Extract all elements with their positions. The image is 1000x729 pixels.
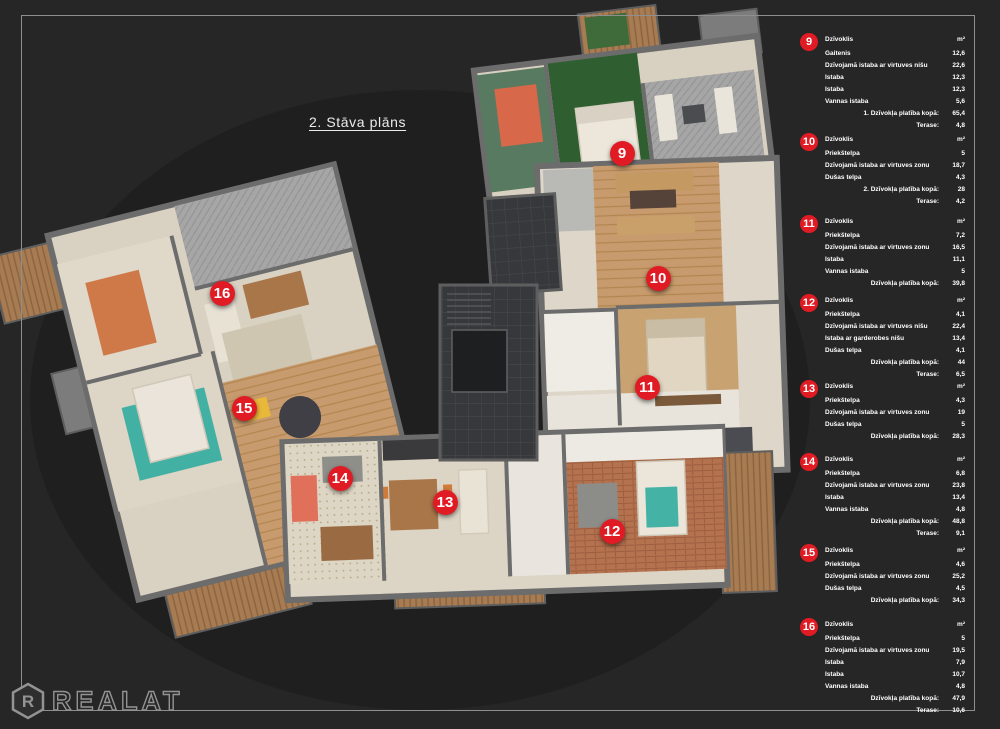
apartment-legend-12: 12 Dzīvoklis m² Priekštelpa 4,1 Dzīvojam… bbox=[800, 294, 965, 381]
room-table: Dzīvoklis m² Gaitenis 12,6 Dzīvojamā ist… bbox=[825, 34, 965, 132]
room-row: Terase: 4,2 bbox=[825, 196, 965, 208]
room-row: Vannas istaba 4,8 bbox=[825, 681, 965, 693]
apartment-legend-9: 9 Dzīvoklis m² Gaitenis 12,6 Dzīvojamā i… bbox=[800, 33, 965, 132]
room-row: Gaitenis 12,6 bbox=[825, 48, 965, 60]
apartment-legend-15: 15 Dzīvoklis m² Priekštelpa 4,6 Dzīvojam… bbox=[800, 544, 965, 607]
apartment-legend-14: 14 Dzīvoklis m² Priekštelpa 6,8 Dzīvojam… bbox=[800, 453, 965, 540]
room-table: Dzīvoklis m² Priekštelpa 4,6 Dzīvojamā i… bbox=[825, 545, 965, 607]
room-row: Terase: 9,1 bbox=[825, 528, 965, 540]
room-row: Terase: 4,8 bbox=[825, 120, 965, 132]
plan-marker-14: 14 bbox=[328, 466, 353, 491]
room-table: Dzīvoklis m² Priekštelpa 4,3 Dzīvojamā i… bbox=[825, 381, 965, 443]
plan-marker-12: 12 bbox=[600, 519, 625, 544]
room-row: Dzīvokļa platība kopā: 48,8 bbox=[825, 516, 965, 528]
plan-marker-15: 15 bbox=[232, 396, 257, 421]
room-row: Dzīvokļa platība kopā: 28,3 bbox=[825, 431, 965, 443]
room-row: Vannas istaba 5,6 bbox=[825, 96, 965, 108]
plan-marker-13: 13 bbox=[433, 490, 458, 515]
plan-marker-10: 10 bbox=[646, 266, 671, 291]
room-row: Dzīvojamā istaba ar virtuves zonu 23,8 bbox=[825, 480, 965, 492]
apartment-number-badge: 10 bbox=[800, 133, 818, 151]
room-row: Dušas telpa 5 bbox=[825, 419, 965, 431]
room-row: Priekštelpa 5 bbox=[825, 148, 965, 160]
room-row: Dušas telpa 4,1 bbox=[825, 345, 965, 357]
room-row: Terase: 10,6 bbox=[825, 705, 965, 717]
room-row: Istaba 12,3 bbox=[825, 84, 965, 96]
room-row: Dušas telpa 4,3 bbox=[825, 172, 965, 184]
room-row: Dzīvokļa platība kopā: 34,3 bbox=[825, 595, 965, 607]
room-row: 1. Dzīvokļa platība kopā: 65,4 bbox=[825, 108, 965, 120]
table-header: Dzīvoklis m² bbox=[825, 381, 965, 393]
room-row: Priekštelpa 4,1 bbox=[825, 309, 965, 321]
table-header: Dzīvoklis m² bbox=[825, 454, 965, 466]
room-row: Istaba 13,4 bbox=[825, 492, 965, 504]
room-row: Istaba 12,3 bbox=[825, 72, 965, 84]
apartment-number-badge: 9 bbox=[800, 33, 818, 51]
apartment-legend-10: 10 Dzīvoklis m² Priekštelpa 5 Dzīvojamā … bbox=[800, 133, 965, 208]
room-row: Priekštelpa 6,8 bbox=[825, 468, 965, 480]
table-header: Dzīvoklis m² bbox=[825, 295, 965, 307]
room-row: Dzīvokļa platība kopā: 39,8 bbox=[825, 278, 965, 290]
page-title: 2. Stāva plāns bbox=[309, 114, 406, 130]
room-row: Dušas telpa 4,5 bbox=[825, 583, 965, 595]
table-header: Dzīvoklis m² bbox=[825, 34, 965, 46]
room-table: Dzīvoklis m² Priekštelpa 6,8 Dzīvojamā i… bbox=[825, 454, 965, 540]
room-row: Dzīvojamā istaba ar virtuves zonu 18,7 bbox=[825, 160, 965, 172]
room-row: Dzīvojamā istaba ar virtuves zonu 19,5 bbox=[825, 645, 965, 657]
apartment-legend-13: 13 Dzīvoklis m² Priekštelpa 4,3 Dzīvojam… bbox=[800, 380, 965, 443]
apartment-legend-16: 16 Dzīvoklis m² Priekštelpa 5 Dzīvojamā … bbox=[800, 618, 965, 717]
apartment-number-badge: 11 bbox=[800, 215, 818, 233]
logo-hexagon-icon: R bbox=[10, 682, 46, 720]
room-table: Dzīvoklis m² Priekštelpa 7,2 Dzīvojamā i… bbox=[825, 216, 965, 290]
apartment-number-badge: 14 bbox=[800, 453, 818, 471]
room-row: Vannas istaba 4,8 bbox=[825, 504, 965, 516]
plan-marker-11: 11 bbox=[635, 375, 660, 400]
room-row: Priekštelpa 5 bbox=[825, 633, 965, 645]
table-header: Dzīvoklis m² bbox=[825, 619, 965, 631]
room-row: Dzīvojamā istaba ar virtuves nišu 22,6 bbox=[825, 60, 965, 72]
logo: R REALAT bbox=[10, 682, 184, 720]
room-row: Priekštelpa 4,3 bbox=[825, 395, 965, 407]
table-header: Dzīvoklis m² bbox=[825, 134, 965, 146]
room-row: Dzīvojamā istaba ar virtuves zonu 25,2 bbox=[825, 571, 965, 583]
plan-marker-16: 16 bbox=[210, 281, 235, 306]
logo-text: REALAT bbox=[52, 682, 184, 720]
room-table: Dzīvoklis m² Priekštelpa 5 Dzīvojamā ist… bbox=[825, 134, 965, 208]
room-row: Dzīvojamā istaba ar virtuves nišu 22,4 bbox=[825, 321, 965, 333]
room-row: Istaba 10,7 bbox=[825, 669, 965, 681]
room-table: Dzīvoklis m² Priekštelpa 5 Dzīvojamā ist… bbox=[825, 619, 965, 717]
room-row: Istaba 11,1 bbox=[825, 254, 965, 266]
room-row: Dzīvokļa platība kopā: 47,9 bbox=[825, 693, 965, 705]
logo-letter: R bbox=[22, 692, 34, 711]
table-header: Dzīvoklis m² bbox=[825, 216, 965, 228]
apartment-number-badge: 15 bbox=[800, 544, 818, 562]
room-table: Dzīvoklis m² Priekštelpa 4,1 Dzīvojamā i… bbox=[825, 295, 965, 381]
apartment-number-badge: 16 bbox=[800, 618, 818, 636]
apartment-number-badge: 12 bbox=[800, 294, 818, 312]
room-row: Istaba ar garderobes nišu 13,4 bbox=[825, 333, 965, 345]
room-row: Istaba 7,9 bbox=[825, 657, 965, 669]
room-row: Priekštelpa 7,2 bbox=[825, 230, 965, 242]
room-row: 2. Dzīvokļa platība kopā: 28 bbox=[825, 184, 965, 196]
floor-plan-page: 2. Stāva plāns 910111213141516 9 Dzīvokl… bbox=[0, 0, 1000, 729]
room-row: Dzīvojamā istaba ar virtuves zonu 19 bbox=[825, 407, 965, 419]
apartment-legend-11: 11 Dzīvoklis m² Priekštelpa 7,2 Dzīvojam… bbox=[800, 215, 965, 290]
apartment-number-badge: 13 bbox=[800, 380, 818, 398]
plan-marker-9: 9 bbox=[610, 141, 635, 166]
room-row: Priekštelpa 4,6 bbox=[825, 559, 965, 571]
room-row: Vannas istaba 5 bbox=[825, 266, 965, 278]
room-row: Dzīvokļa platība kopā: 44 bbox=[825, 357, 965, 369]
room-row: Dzīvojamā istaba ar virtuves zonu 16,5 bbox=[825, 242, 965, 254]
table-header: Dzīvoklis m² bbox=[825, 545, 965, 557]
